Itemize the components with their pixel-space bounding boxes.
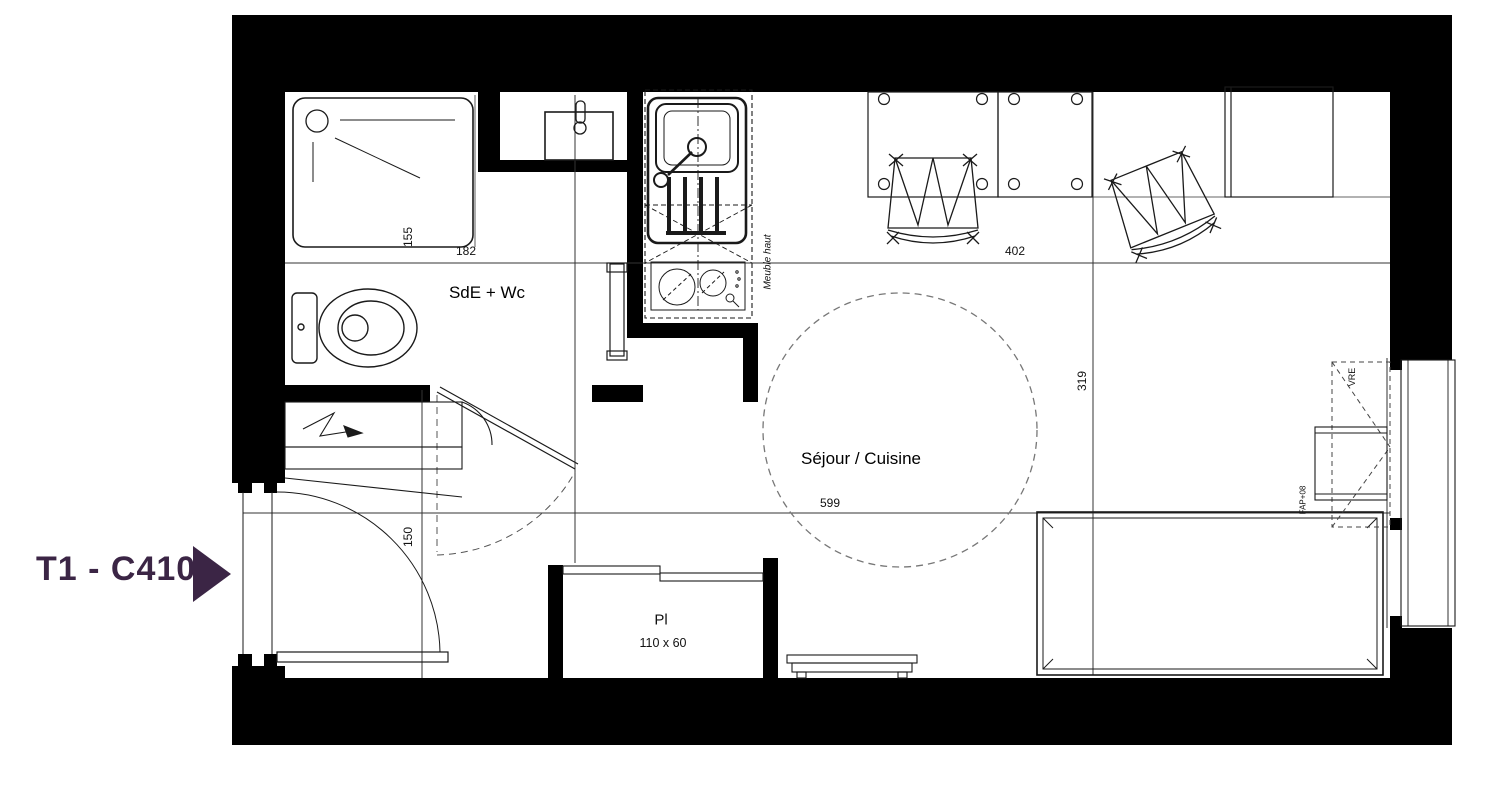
electrical-panel	[285, 402, 492, 497]
kitchen-sink	[648, 98, 746, 243]
floor-plan: SdE + Wc Séjour / Cuisine Pl 110 x 60 15…	[0, 0, 1500, 800]
closet-sliding-doors	[563, 566, 763, 581]
shutter-zone	[1332, 362, 1390, 527]
room-label-bathroom: SdE + Wc	[449, 283, 525, 303]
plan-linework	[0, 0, 1500, 800]
window-assembly	[1315, 358, 1455, 628]
upper-cabinet-outline	[645, 90, 752, 318]
desk-chair-2	[1102, 145, 1221, 263]
dim-shower-length: 182	[456, 244, 476, 258]
bed	[1037, 512, 1383, 675]
dim-living-width: 402	[1005, 244, 1025, 258]
kitchen-unit	[645, 90, 752, 318]
annotation-upper-cabinet: Meuble haut	[763, 234, 774, 289]
dim-entry-width: 150	[401, 527, 415, 547]
title-arrow-icon	[193, 546, 231, 602]
window-radiator	[1315, 427, 1387, 500]
annotation-roller-shutter: VRE	[1347, 368, 1357, 387]
reference-lines	[243, 92, 1390, 678]
dim-living-length: 599	[820, 496, 840, 510]
annotation-window-sill: FAP+08	[1299, 486, 1308, 515]
desk-chair-1	[887, 154, 979, 244]
desk-tables	[868, 92, 1092, 197]
bathroom-door	[437, 387, 578, 555]
turning-circle	[763, 293, 1037, 567]
coffee-table	[787, 655, 917, 678]
washbasin	[545, 101, 613, 160]
cabinet	[1225, 87, 1333, 197]
window	[1401, 360, 1455, 626]
apartment-title: T1 - C410	[36, 550, 196, 589]
shower	[293, 98, 473, 247]
room-label-living: Séjour / Cuisine	[801, 449, 921, 469]
toilet	[292, 289, 417, 367]
entry-door	[243, 492, 448, 662]
room-label-closet: Pl	[654, 612, 667, 629]
closet-size-label: 110 x 60	[639, 636, 686, 650]
dim-living-depth: 319	[1075, 371, 1089, 391]
bathroom-radiator	[607, 263, 627, 360]
dim-shower-width: 155	[401, 227, 415, 247]
